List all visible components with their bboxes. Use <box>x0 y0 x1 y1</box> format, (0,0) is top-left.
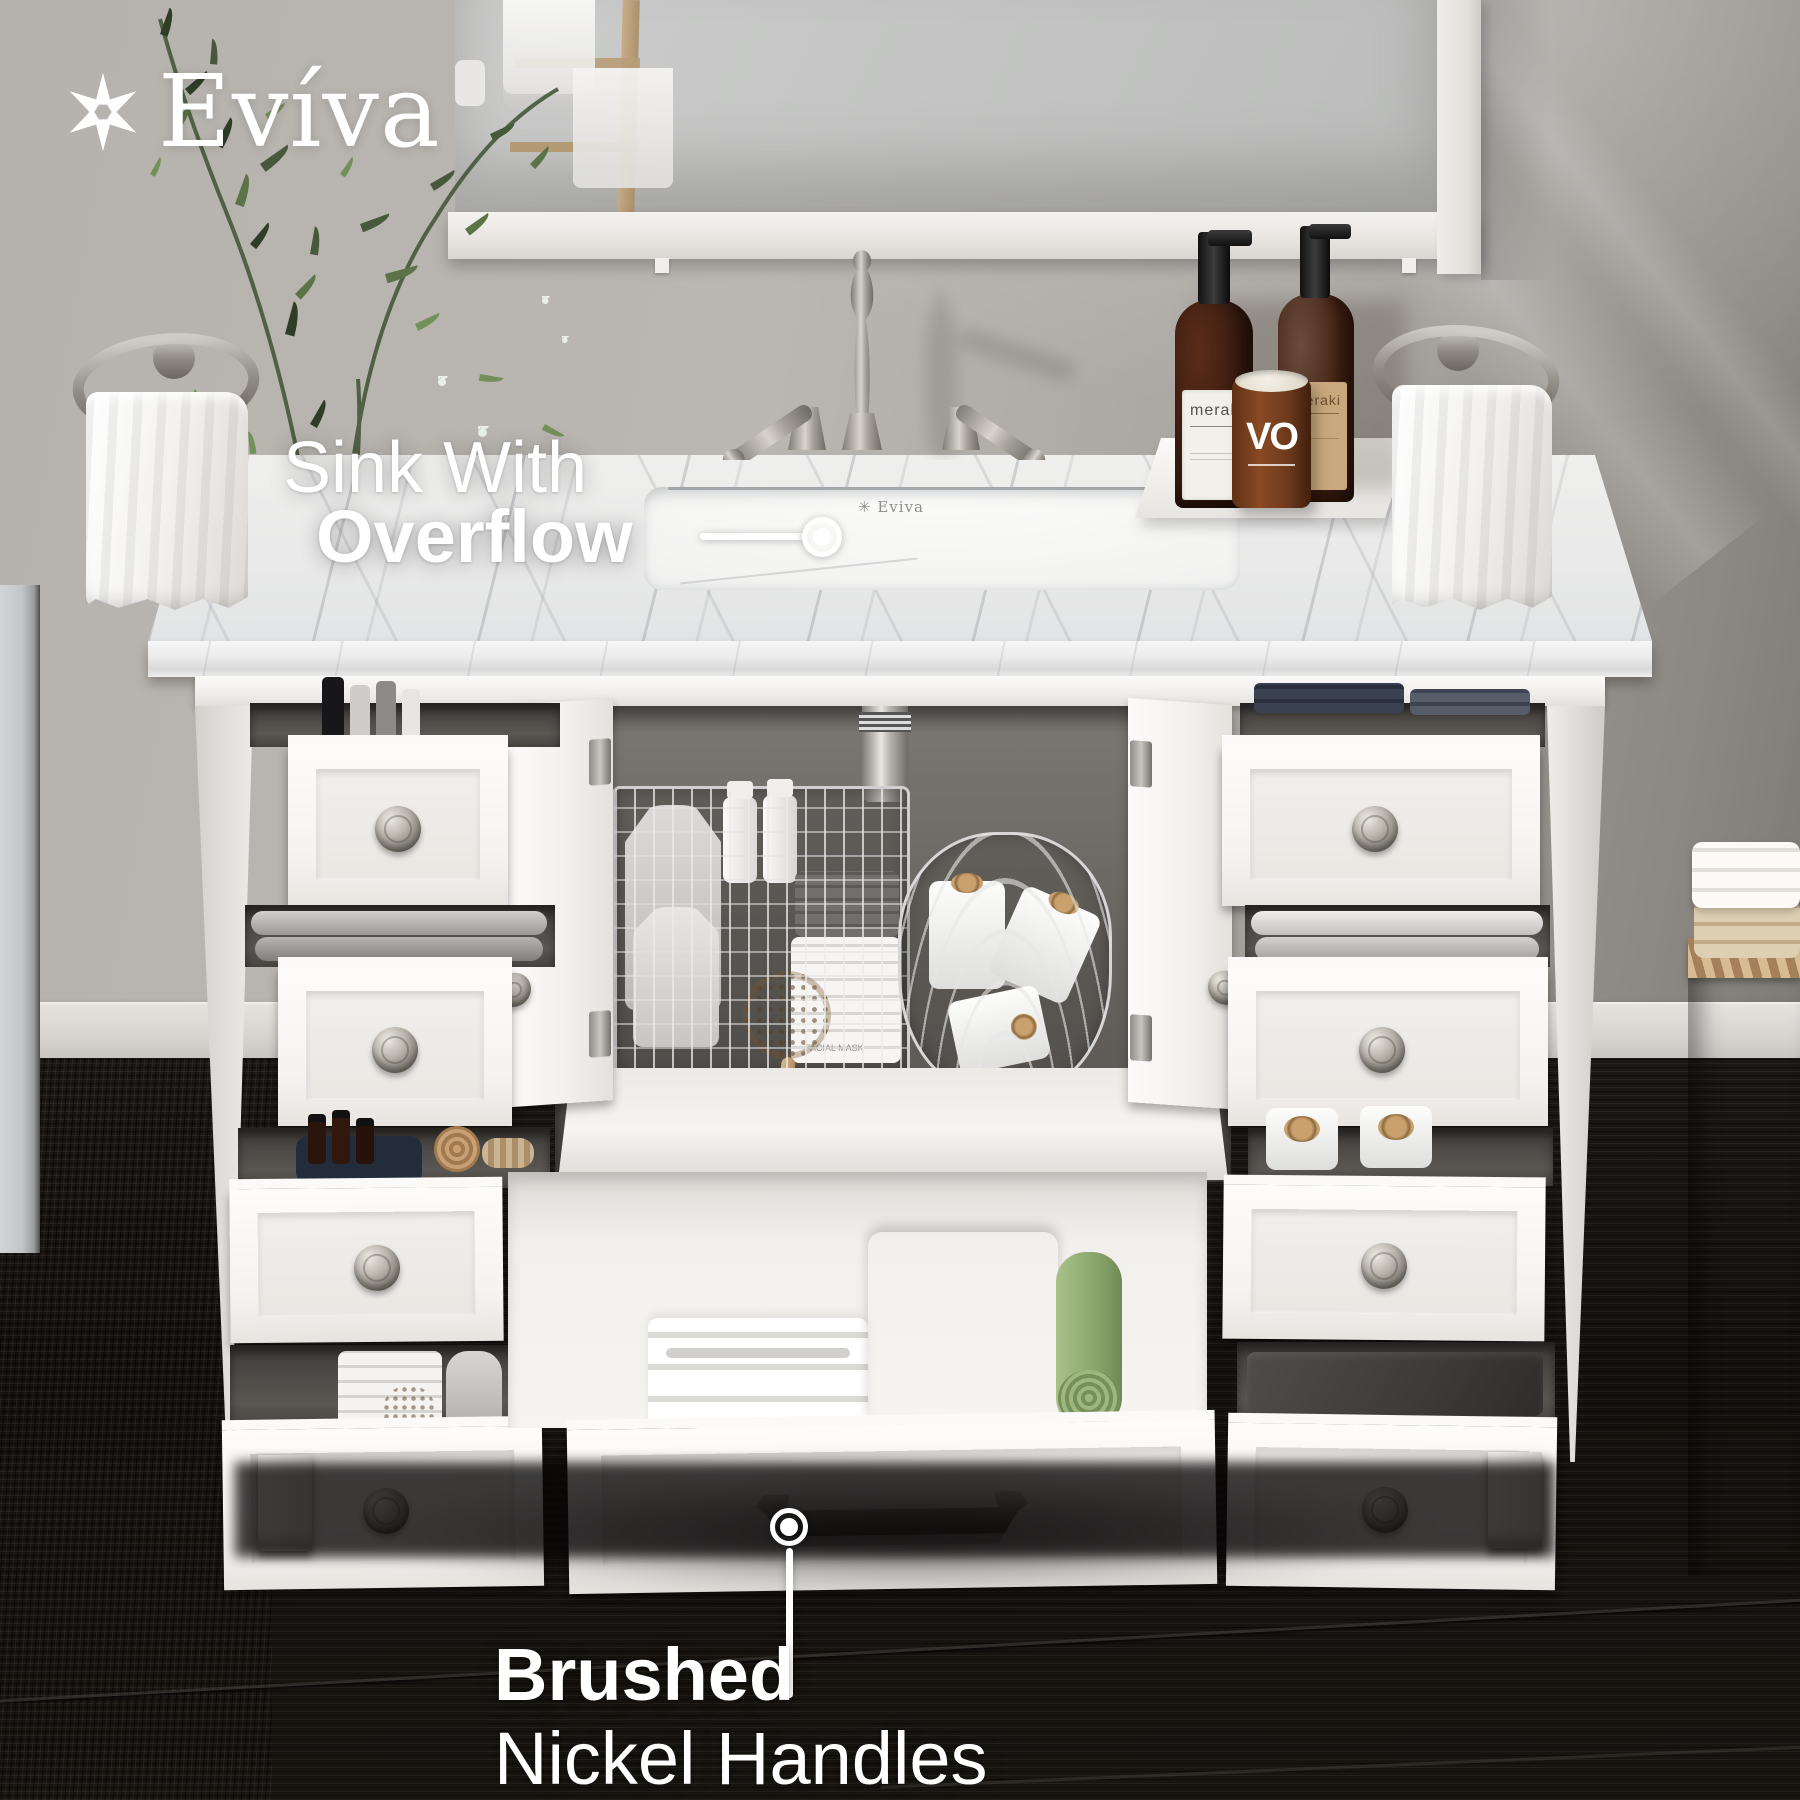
mirror-frame-side <box>1437 0 1481 274</box>
mirror-clip <box>1402 258 1416 273</box>
drawer-knob <box>372 1027 418 1073</box>
candle-label-text: VO <box>1232 416 1311 459</box>
toilet-paper-roll <box>946 984 1051 1076</box>
hamper-towel-beige <box>1694 900 1800 958</box>
annotation-handles-line1: Brushed <box>494 1638 794 1712</box>
mirror-wall-shadow <box>1481 0 1551 280</box>
mirror <box>455 0 1437 213</box>
toilet-paper-basket <box>898 832 1112 1094</box>
toiletry-bottle <box>322 677 344 741</box>
wicker-hamper <box>1688 938 1800 1576</box>
soap-pump <box>1300 226 1330 298</box>
bottom-drawer-box <box>508 1172 1207 1428</box>
amber-mini-bottle <box>332 1110 350 1164</box>
annotation-sink-line1: Sink With <box>283 432 587 504</box>
soap-pump <box>1198 232 1230 304</box>
drawer-knob <box>354 1245 400 1291</box>
sink-logo-text: Eviva <box>877 498 924 516</box>
towel-left <box>86 392 248 610</box>
faucet <box>660 235 1130 460</box>
candle: VO <box>1232 378 1311 508</box>
spiral-brush <box>434 1126 480 1172</box>
cabinet-door-right <box>1128 698 1232 1109</box>
bottle-white <box>723 797 757 883</box>
soap-pump-spout <box>1208 230 1252 246</box>
annotation-handles-line2: Nickel Handles <box>494 1722 988 1796</box>
drawstring-bag <box>633 907 719 1047</box>
amber-mini-bottle <box>308 1114 326 1164</box>
drawstring-bag <box>446 1351 502 1423</box>
towel-right <box>1392 385 1552 610</box>
toilet-paper-roll <box>1360 1106 1432 1168</box>
amber-mini-bottle <box>356 1118 374 1164</box>
drawer-left-3 <box>229 1187 503 1343</box>
scene: Evíva ✳ Eviva <box>0 0 1800 1800</box>
hamper-towel-white <box>1692 842 1800 908</box>
rolled-cloth <box>482 1138 534 1168</box>
drawer-knob <box>1361 1243 1407 1289</box>
toiletry-bottle <box>376 681 396 741</box>
cabinet-door-left <box>505 698 613 1108</box>
drawer-left-1 <box>288 745 508 906</box>
pad-stack-dark <box>795 871 899 937</box>
drawer-knob <box>1359 1027 1405 1073</box>
sink-printed-logo: ✳ Eviva <box>858 498 924 516</box>
bottle-cap <box>767 779 793 797</box>
countertop-edge <box>148 641 1652 677</box>
toilet-paper-roll <box>1266 1108 1338 1170</box>
folded-towels-dark <box>1410 689 1530 715</box>
bottle-white <box>763 795 797 883</box>
candle-wax <box>1235 370 1308 392</box>
soap-pump-spout <box>1309 224 1351 239</box>
candle-caption-line <box>1248 464 1295 466</box>
toiletry-bottle <box>402 689 420 739</box>
handle-marker <box>770 1508 808 1546</box>
brand-logo: Evíva <box>62 62 441 162</box>
drawer-knob <box>375 806 421 852</box>
bottle-cap <box>727 781 753 799</box>
storage-basket: FACIAL MASK <box>612 786 910 1076</box>
annotation-sink-line2: Overflow <box>316 500 633 574</box>
drawer-knob <box>1352 806 1398 852</box>
folded-towel-gray <box>1247 1352 1543 1416</box>
sink-overflow-marker <box>802 517 842 557</box>
drawer-right-2 <box>1228 967 1548 1126</box>
logo-text: Evíva <box>158 62 441 162</box>
sink-leader-line <box>700 533 804 540</box>
dark-towel <box>868 1232 1058 1428</box>
green-rolled-towel <box>1056 1252 1122 1428</box>
toiletry-bottle <box>350 685 370 741</box>
logo-star-icon <box>62 62 144 162</box>
towel-band <box>666 1348 850 1358</box>
wooden-brush <box>743 971 831 1059</box>
rolled-towel <box>251 911 547 935</box>
drawer-right-3 <box>1222 1185 1545 1342</box>
white-towel-stack <box>648 1318 868 1428</box>
rolled-towel <box>1251 911 1543 935</box>
drawer-left-2 <box>278 967 512 1126</box>
under-cabinet-shadow <box>235 1462 1555 1557</box>
drawer-right-1 <box>1222 745 1540 906</box>
folded-towels-dark <box>1254 683 1404 713</box>
